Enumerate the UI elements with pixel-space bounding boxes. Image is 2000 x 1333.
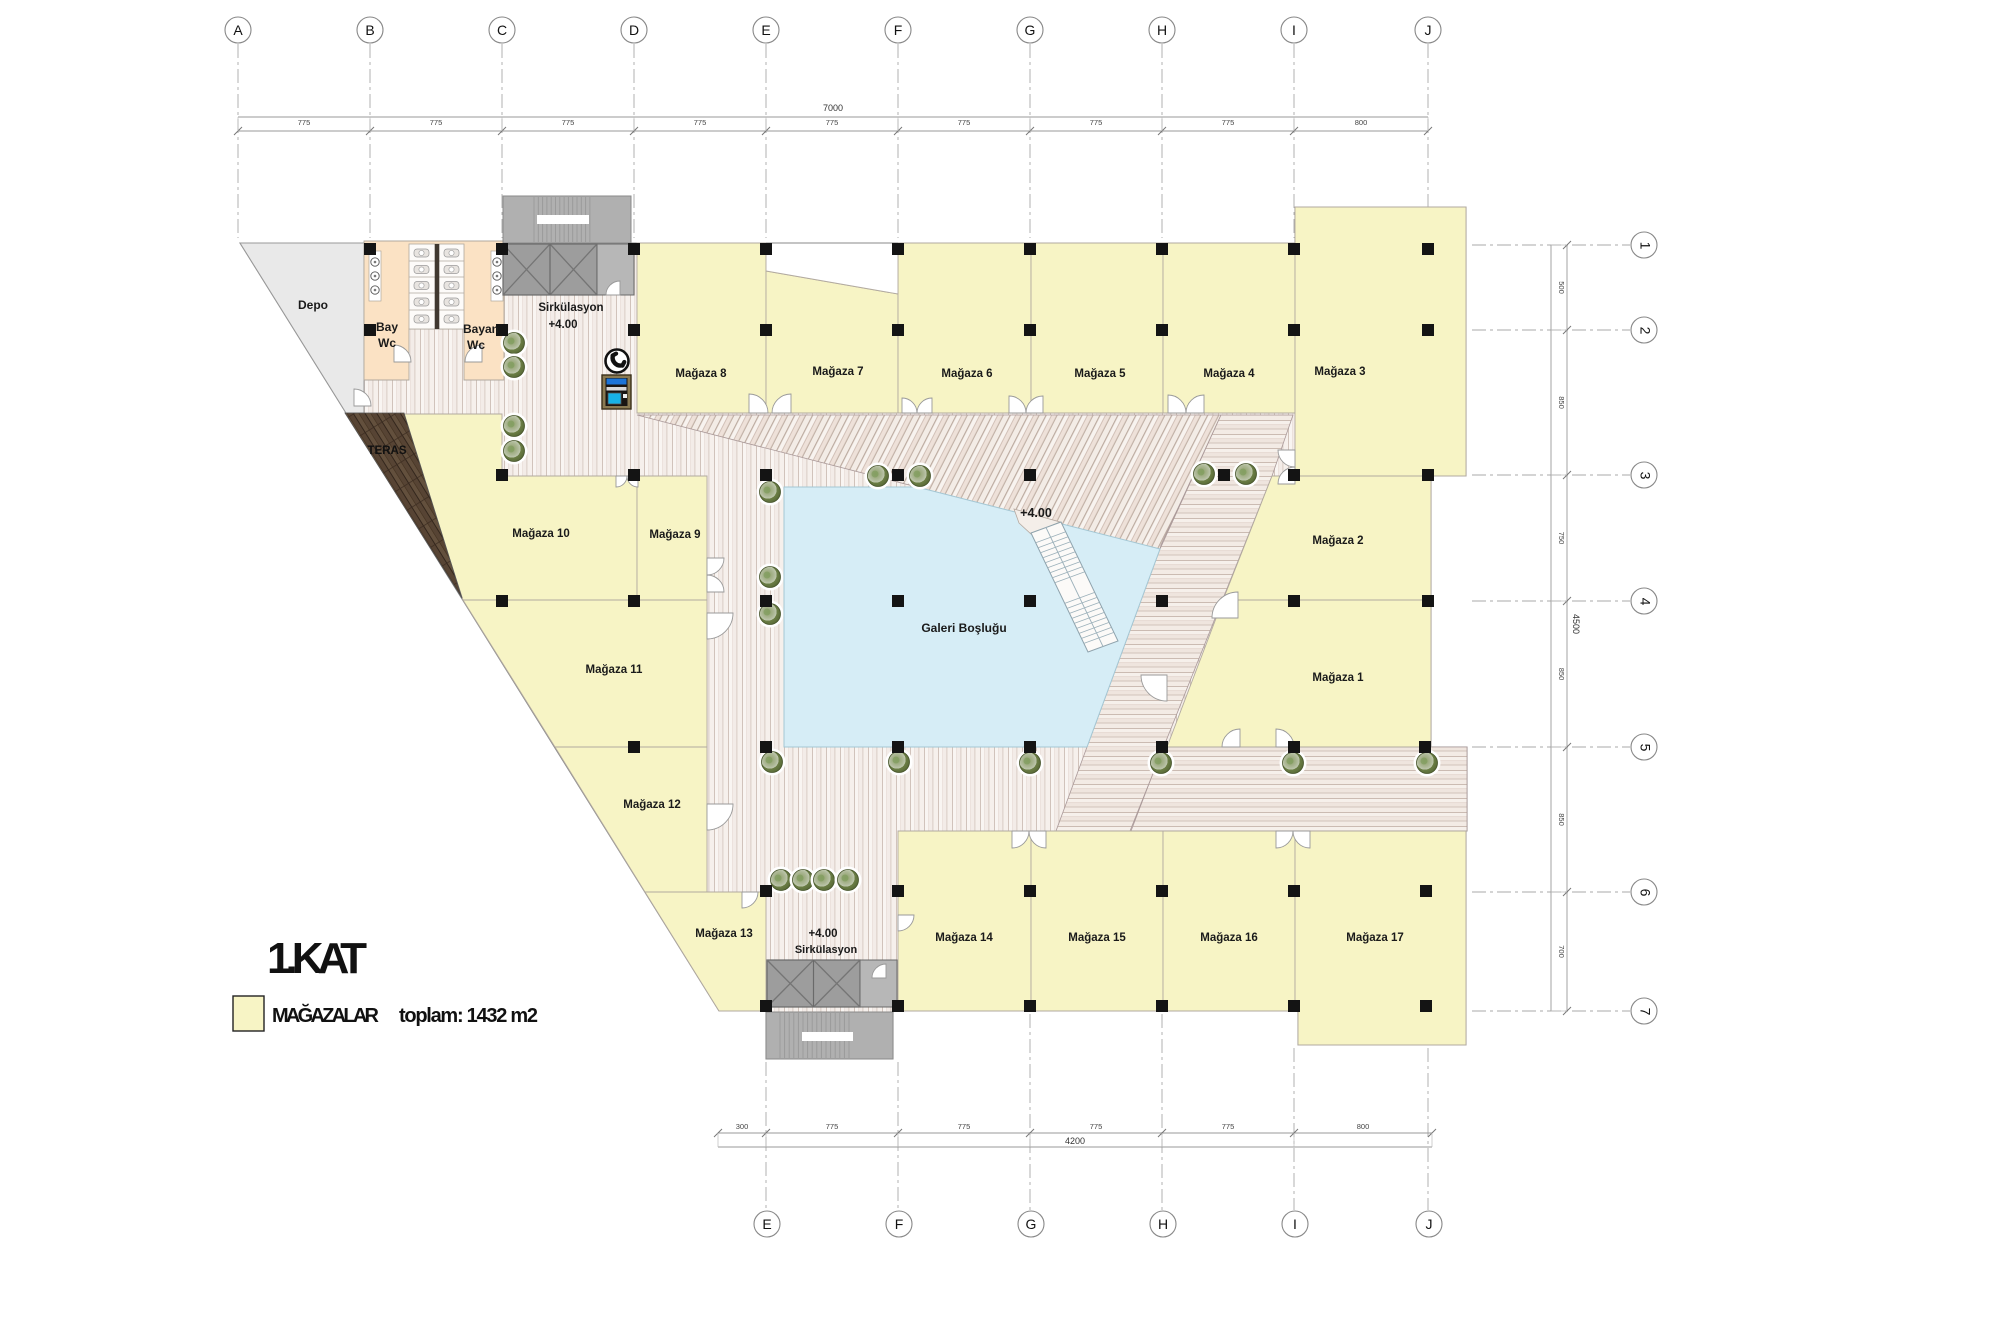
- svg-text:+4.00: +4.00: [808, 928, 837, 940]
- svg-text:Mağaza 5: Mağaza 5: [1074, 368, 1126, 380]
- svg-text:775: 775: [826, 1122, 839, 1131]
- svg-text:TERAS: TERAS: [368, 445, 407, 457]
- svg-text:775: 775: [1222, 1122, 1235, 1131]
- svg-text:700: 700: [1557, 945, 1566, 958]
- svg-text:J: J: [1425, 22, 1432, 38]
- svg-text:D: D: [629, 22, 639, 38]
- svg-text:Sirkülasyon: Sirkülasyon: [538, 302, 603, 314]
- svg-text:850: 850: [1557, 396, 1566, 409]
- svg-text:750: 750: [1557, 532, 1566, 545]
- svg-text:775: 775: [694, 118, 707, 127]
- svg-text:2: 2: [1637, 327, 1653, 335]
- svg-text:I: I: [1293, 1216, 1297, 1232]
- svg-text:toplam: 1432 m2: toplam: 1432 m2: [399, 1005, 538, 1027]
- svg-text:500: 500: [1557, 281, 1566, 294]
- svg-text:Mağaza 15: Mağaza 15: [1068, 932, 1126, 944]
- svg-text:Bayan: Bayan: [463, 322, 499, 336]
- svg-text:775: 775: [1090, 118, 1103, 127]
- svg-text:775: 775: [562, 118, 575, 127]
- svg-text:Mağaza 1: Mağaza 1: [1312, 672, 1364, 684]
- svg-text:G: G: [1026, 1216, 1037, 1232]
- svg-text:800: 800: [1355, 118, 1368, 127]
- svg-text:775: 775: [298, 118, 311, 127]
- svg-text:Mağaza 12: Mağaza 12: [623, 799, 681, 811]
- svg-text:4: 4: [1637, 598, 1653, 606]
- svg-text:3: 3: [1637, 472, 1653, 480]
- svg-text:Wc: Wc: [378, 336, 396, 350]
- svg-text:Mağaza 11: Mağaza 11: [586, 664, 643, 676]
- svg-text:H: H: [1158, 1216, 1168, 1232]
- svg-text:A: A: [233, 22, 243, 38]
- svg-text:F: F: [894, 22, 903, 38]
- svg-text:Mağaza 10: Mağaza 10: [512, 528, 570, 540]
- svg-text:Mağaza 17: Mağaza 17: [1346, 932, 1404, 944]
- svg-text:7000: 7000: [823, 103, 843, 113]
- svg-text:775: 775: [1222, 118, 1235, 127]
- svg-text:775: 775: [430, 118, 443, 127]
- svg-text:G: G: [1025, 22, 1036, 38]
- svg-text:Mağaza 7: Mağaza 7: [812, 366, 863, 378]
- svg-text:Mağaza 9: Mağaza 9: [649, 529, 700, 541]
- svg-text:775: 775: [1090, 1122, 1103, 1131]
- svg-text:+4.00: +4.00: [1020, 506, 1052, 520]
- svg-text:775: 775: [958, 1122, 971, 1131]
- svg-text:Mağaza 6: Mağaza 6: [941, 368, 992, 380]
- svg-text:Galeri Boşluğu: Galeri Boşluğu: [921, 621, 1006, 635]
- svg-text:C: C: [497, 22, 507, 38]
- svg-text:300: 300: [736, 1122, 749, 1131]
- svg-text:775: 775: [826, 118, 839, 127]
- svg-text:Sirkülasyon: Sirkülasyon: [795, 944, 858, 956]
- svg-text:1: 1: [1637, 242, 1653, 250]
- svg-text:E: E: [762, 1216, 771, 1232]
- svg-text:775: 775: [958, 118, 971, 127]
- svg-text:E: E: [761, 22, 770, 38]
- svg-text:I: I: [1292, 22, 1296, 38]
- svg-text:850: 850: [1557, 813, 1566, 826]
- svg-text:Bay: Bay: [376, 320, 398, 334]
- svg-text:Depo: Depo: [298, 298, 328, 312]
- svg-text:1.KAT: 1.KAT: [267, 934, 367, 983]
- svg-text:F: F: [895, 1216, 904, 1232]
- svg-text:MAĞAZALAR: MAĞAZALAR: [272, 1003, 380, 1027]
- svg-text:Mağaza 13: Mağaza 13: [695, 928, 753, 940]
- svg-text:H: H: [1157, 22, 1167, 38]
- svg-text:4200: 4200: [1065, 1136, 1085, 1146]
- svg-text:Mağaza 4: Mağaza 4: [1203, 368, 1255, 380]
- svg-text:Mağaza 16: Mağaza 16: [1200, 932, 1258, 944]
- svg-text:Wc: Wc: [467, 338, 485, 352]
- svg-text:Mağaza 8: Mağaza 8: [675, 368, 727, 380]
- svg-text:4500: 4500: [1571, 614, 1581, 634]
- svg-text:B: B: [365, 22, 374, 38]
- svg-text:6: 6: [1637, 889, 1653, 897]
- svg-text:5: 5: [1637, 744, 1653, 752]
- svg-text:Mağaza 2: Mağaza 2: [1312, 535, 1363, 547]
- svg-text:850: 850: [1557, 668, 1566, 681]
- svg-text:+4.00: +4.00: [548, 319, 577, 331]
- svg-text:7: 7: [1637, 1008, 1653, 1016]
- svg-text:Mağaza 3: Mağaza 3: [1314, 366, 1365, 378]
- svg-text:800: 800: [1357, 1122, 1370, 1131]
- svg-text:J: J: [1426, 1216, 1433, 1232]
- svg-text:Mağaza 14: Mağaza 14: [935, 932, 993, 944]
